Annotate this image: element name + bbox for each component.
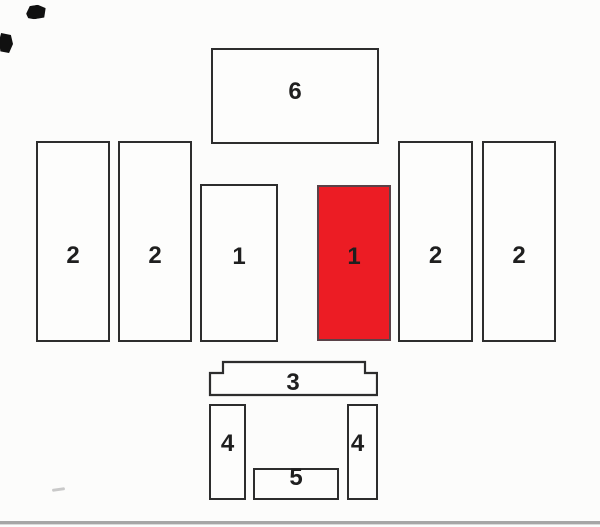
piece-4-right-label: 4: [351, 432, 364, 456]
piece-2-left-label: 2: [148, 244, 161, 268]
piece-2-right-label: 2: [429, 244, 442, 268]
piece-2-far-left: 2: [36, 141, 110, 342]
piece-2-far-right-label: 2: [512, 244, 525, 268]
scan-mark-top-left: [25, 4, 46, 20]
piece-2-far-right: 2: [482, 141, 556, 342]
piece-2-right: 2: [398, 141, 473, 342]
piece-6: 6: [211, 48, 379, 144]
page-bottom-rule: [0, 521, 600, 525]
piece-2-far-left-label: 2: [66, 244, 79, 268]
piece-4-left: 4: [209, 404, 246, 500]
piece-2-left: 2: [118, 141, 192, 342]
piece-5: 5: [253, 468, 339, 500]
piece-1-left: 1: [200, 184, 278, 342]
piece-1-right-highlighted: 1: [317, 185, 391, 341]
parts-diagram-canvas: 6 2 2 1 1 2 2 3 4 4 5: [0, 0, 600, 527]
scan-mark-left-edge: [0, 33, 13, 53]
piece-4-right: 4: [347, 404, 378, 500]
piece-3: 3: [208, 359, 378, 397]
piece-1-left-label: 1: [232, 245, 245, 269]
piece-5-label: 5: [289, 466, 302, 490]
piece-1-right-label: 1: [347, 245, 360, 269]
piece-4-left-label: 4: [221, 432, 234, 456]
scan-smudge: [52, 487, 65, 492]
piece-6-label: 6: [288, 80, 301, 104]
piece-3-label: 3: [286, 371, 299, 395]
